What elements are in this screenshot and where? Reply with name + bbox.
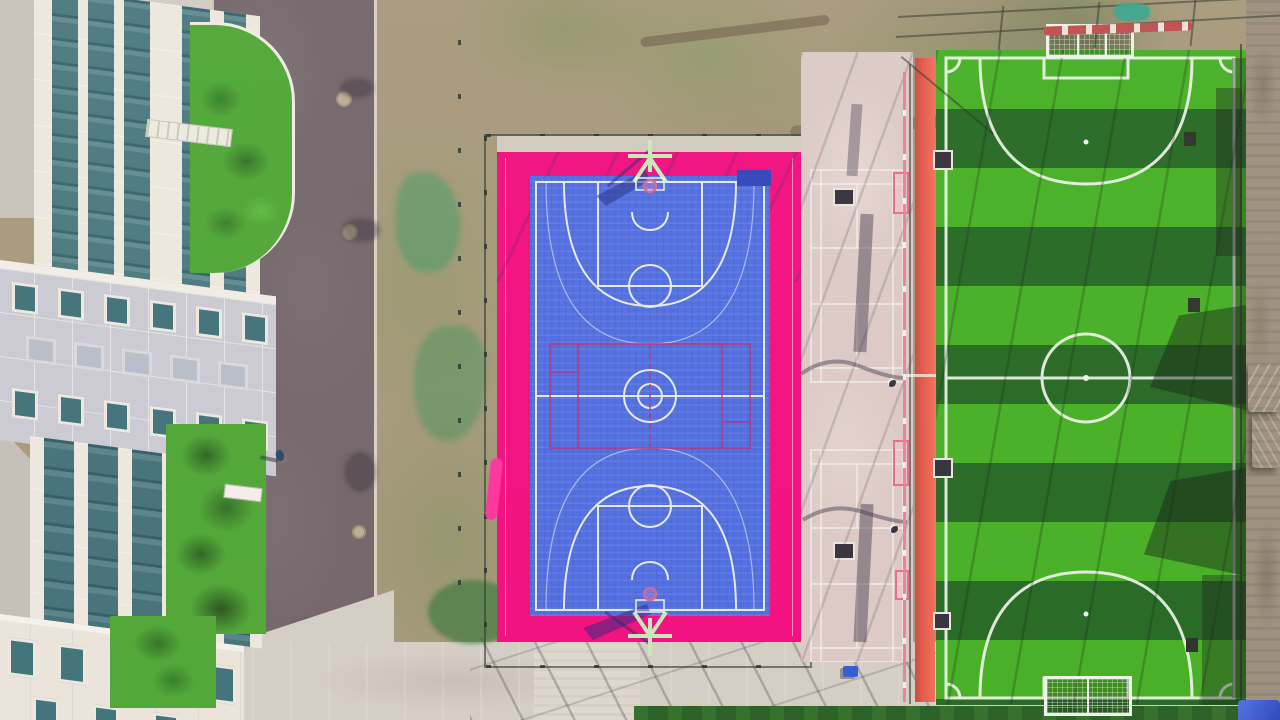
fence-posts-left <box>484 136 487 666</box>
basketball-markings <box>530 176 770 616</box>
fence-shadow-on-strip <box>801 52 913 662</box>
window-blinds <box>74 342 104 372</box>
teal-tarp <box>1114 3 1150 21</box>
window <box>58 288 84 321</box>
glass-curtain-strip <box>88 444 118 630</box>
football-pitch <box>936 50 1246 705</box>
canopy-purple <box>1252 414 1280 468</box>
red-running-stripe <box>915 58 935 702</box>
fence-posts-bottom <box>486 665 810 668</box>
speaker-box <box>1186 638 1198 652</box>
aerial-photo-scene <box>0 0 1280 720</box>
basketball-court <box>530 176 770 616</box>
canopy-blue <box>1248 364 1280 412</box>
net-fence-line <box>458 40 461 630</box>
window-blinds <box>26 335 56 365</box>
window <box>153 712 179 720</box>
lawn-bottom <box>110 616 216 708</box>
window <box>150 300 176 333</box>
manhole-cover <box>352 525 366 539</box>
navy-mat <box>737 170 771 186</box>
tree-shadow <box>340 78 374 98</box>
hoop-stand <box>628 140 672 182</box>
glass-curtain-strip <box>52 0 78 272</box>
speaker-box <box>1184 132 1196 146</box>
window <box>196 306 222 339</box>
window <box>104 294 130 327</box>
glass-curtain-strip <box>132 449 162 635</box>
speaker-box <box>1188 298 1200 312</box>
pitch-right-fence <box>1240 44 1242 706</box>
window-blinds <box>122 348 152 378</box>
soil-streak <box>640 14 830 47</box>
canopy-blue-corner <box>1238 700 1280 720</box>
window-blinds <box>170 354 200 384</box>
glass-curtain-strip <box>124 0 150 282</box>
pitch-bench <box>933 150 953 170</box>
tree-shadow <box>344 452 376 492</box>
hoop-rim <box>644 588 656 600</box>
gravel-strip <box>1246 0 1280 720</box>
pitch-side-rail-pink <box>903 72 906 702</box>
fence-rail <box>898 0 1280 18</box>
glass-curtain-strip <box>44 438 74 624</box>
hoop-rim <box>644 180 656 192</box>
basketball-hoop-bottom <box>575 560 725 660</box>
window <box>12 388 38 421</box>
hedge-bottom-right <box>634 706 1280 720</box>
window <box>104 400 130 433</box>
basketball-hoop-top <box>580 138 720 228</box>
window <box>33 696 59 720</box>
window <box>12 282 38 315</box>
window <box>58 394 84 427</box>
hedge-strip <box>166 424 266 634</box>
pitch-side-fence-dark <box>909 64 911 704</box>
badminton-strip <box>801 52 913 662</box>
fence-shadow-band <box>1232 58 1246 698</box>
window-blinds <box>218 361 248 391</box>
blue-marker <box>843 666 858 677</box>
backboard-shadow <box>596 170 650 206</box>
pitch-bench <box>933 612 951 630</box>
window <box>58 644 86 686</box>
glass-curtain-strip <box>88 0 114 277</box>
green-netting <box>396 172 460 272</box>
tree-shadow <box>342 218 380 242</box>
window <box>8 637 36 679</box>
pitch-bench <box>933 458 953 478</box>
green-netting <box>414 326 486 441</box>
goal-bottom <box>1044 676 1132 716</box>
grass-pocket <box>190 22 295 273</box>
window <box>242 312 268 345</box>
goal-divider <box>1087 679 1089 713</box>
